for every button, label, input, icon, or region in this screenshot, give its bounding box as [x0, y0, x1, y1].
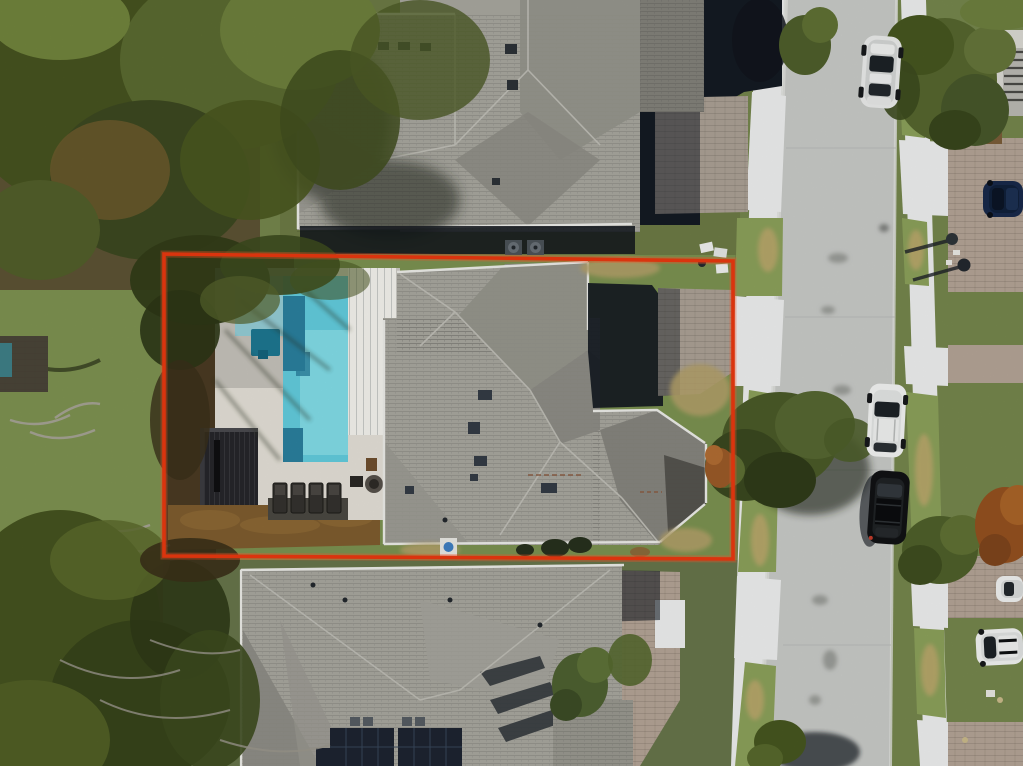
aerial-photo-canvas	[0, 0, 1023, 766]
photo-grain	[0, 0, 1023, 766]
aerial-photo	[0, 0, 1023, 766]
